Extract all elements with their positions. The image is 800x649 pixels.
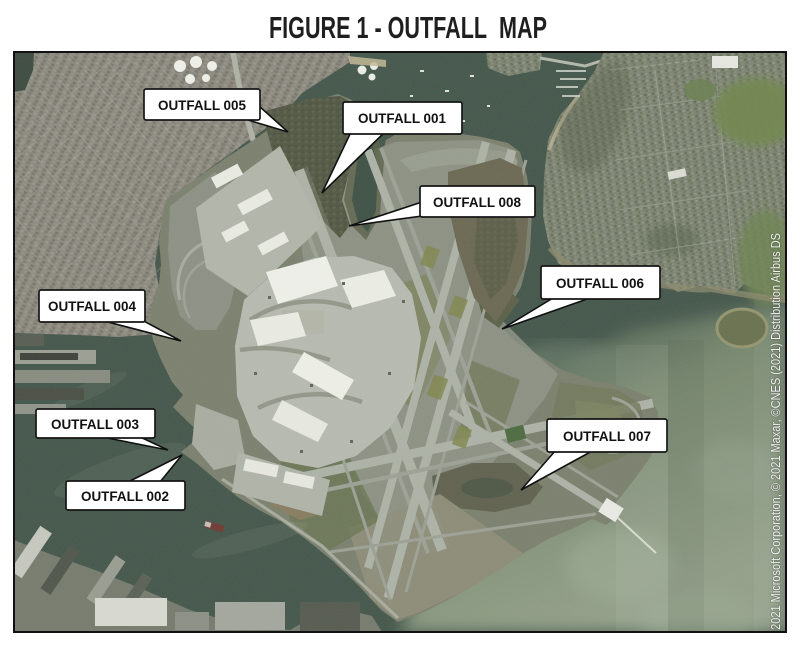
svg-text:OUTFALL 002: OUTFALL 002 (81, 488, 169, 504)
svg-text:FIGURE 1 - OUTFALL MAP: FIGURE 1 - OUTFALL MAP (269, 10, 547, 45)
svg-text:OUTFALL 005: OUTFALL 005 (158, 97, 246, 113)
svg-text:OUTFALL 003: OUTFALL 003 (51, 416, 139, 432)
svg-text:OUTFALL 008: OUTFALL 008 (433, 194, 521, 210)
svg-text:OUTFALL 004: OUTFALL 004 (48, 298, 136, 314)
svg-text:OUTFALL 007: OUTFALL 007 (563, 428, 651, 444)
svg-text:© 2021 Microsoft Corporation,: © 2021 Microsoft Corporation, © 2021 Max… (769, 233, 783, 641)
svg-text:OUTFALL 006: OUTFALL 006 (556, 275, 644, 291)
svg-text:OUTFALL 001: OUTFALL 001 (358, 110, 446, 126)
